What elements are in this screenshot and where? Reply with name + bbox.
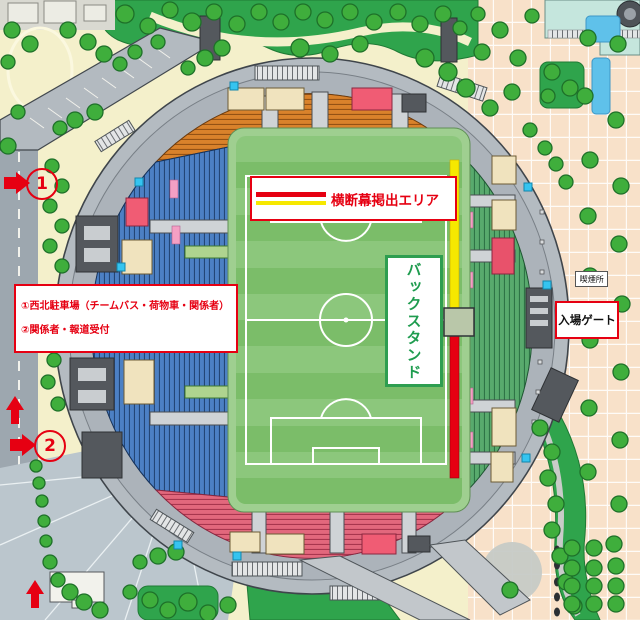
info-line-2: ②関係者・報道受付: [21, 325, 109, 336]
back-stand-label-box: バックスタンド: [385, 255, 443, 387]
nw-building: [84, 5, 106, 21]
bench-platform: [444, 308, 474, 336]
banner-strip-red: [450, 336, 459, 478]
marker-2-number: 2: [44, 438, 56, 455]
smoking-area-label: 喫煙所: [579, 273, 603, 284]
parking-info-box: ①西北駐車場（チームバス・荷物車・関係者） ②関係者・報道受付: [14, 284, 238, 353]
map-marker-2: 2: [34, 430, 66, 462]
west-ramp: [185, 246, 233, 258]
nw-building: [44, 1, 76, 23]
marker-1-number: 1: [36, 176, 48, 193]
round-planter-core: [624, 8, 636, 20]
map-marker-1: 1: [26, 168, 58, 200]
yellow-line-sample: [256, 201, 326, 206]
legend-line-samples: [256, 192, 326, 205]
south-stairs: [232, 562, 302, 576]
red-line-sample: [256, 192, 326, 197]
banner-area-label: 横断幕掲出エリア: [331, 189, 439, 209]
back-stand-label: バックスタンド: [404, 262, 425, 381]
center-spot: [344, 318, 349, 323]
entrance-gate-label: 入場ゲート: [558, 312, 616, 328]
info-line-1: ①西北駐車場（チームバス・荷物車・関係者）: [21, 301, 229, 312]
stadium-map: 横断幕掲出エリア バックスタンド 入場ゲート 喫煙所 ①西北駐車場（チームバス・…: [0, 0, 640, 620]
west-ramp: [185, 386, 233, 398]
nw-building: [8, 3, 38, 23]
banner-area-legend: 横断幕掲出エリア: [250, 176, 457, 221]
smoking-area-label-box: 喫煙所: [575, 271, 608, 287]
entrance-gate-label-box: 入場ゲート: [555, 301, 619, 339]
water-stream: [592, 58, 610, 114]
